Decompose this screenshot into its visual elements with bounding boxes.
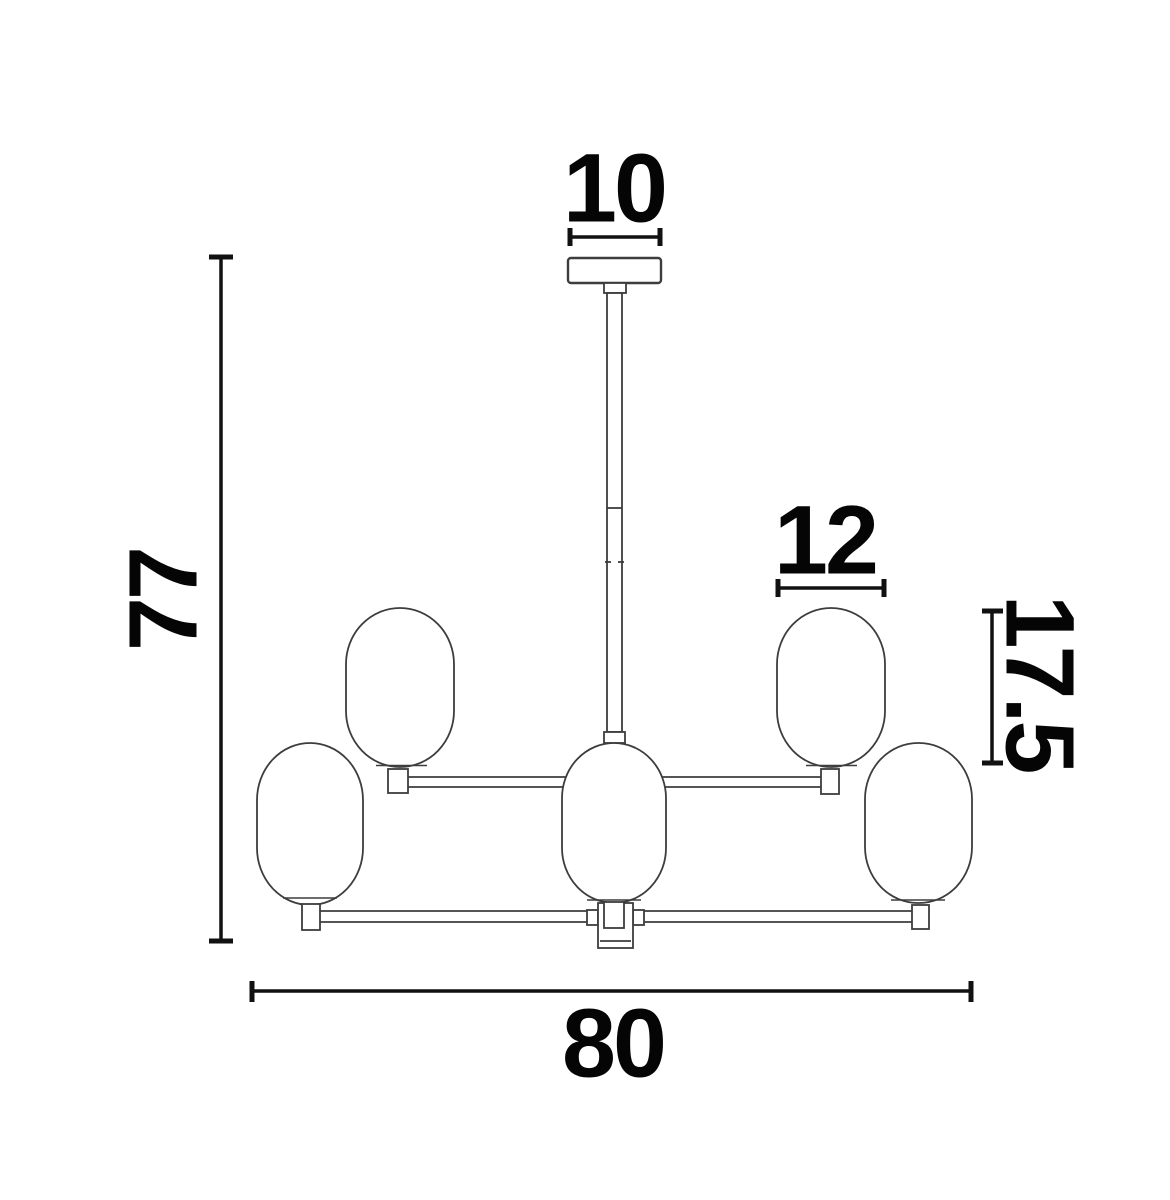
socket-upper-right	[821, 769, 839, 794]
shade-upper-right	[777, 608, 885, 767]
dim-label-canopy-width: 10	[563, 140, 665, 237]
ceiling-canopy-and-stem	[568, 258, 661, 743]
stem-rod	[607, 293, 622, 732]
socket-far-right	[912, 905, 929, 929]
canopy-connector	[604, 283, 626, 293]
ceiling-canopy	[568, 258, 661, 283]
shade-upper-left	[346, 608, 454, 767]
hub-left-tab	[587, 910, 598, 925]
technical-drawing-page: 10 77 12 17.5 80	[0, 0, 1170, 1200]
dim-label-overall-width: 80	[562, 995, 664, 1092]
dim-label-shade-height: 17.5	[992, 595, 1089, 772]
hub-inner-socket	[604, 902, 624, 928]
socket-far-left	[302, 904, 320, 930]
shade-far-right	[865, 743, 972, 903]
hub-right-tab	[633, 910, 644, 925]
dim-label-shade-width: 12	[774, 492, 876, 589]
center-hub	[587, 902, 644, 948]
socket-upper-left	[388, 769, 408, 793]
stem-bottom-collar	[604, 732, 625, 743]
dim-label-overall-height: 77	[115, 549, 212, 651]
shade-far-left	[257, 743, 363, 905]
shade-center	[562, 743, 666, 903]
